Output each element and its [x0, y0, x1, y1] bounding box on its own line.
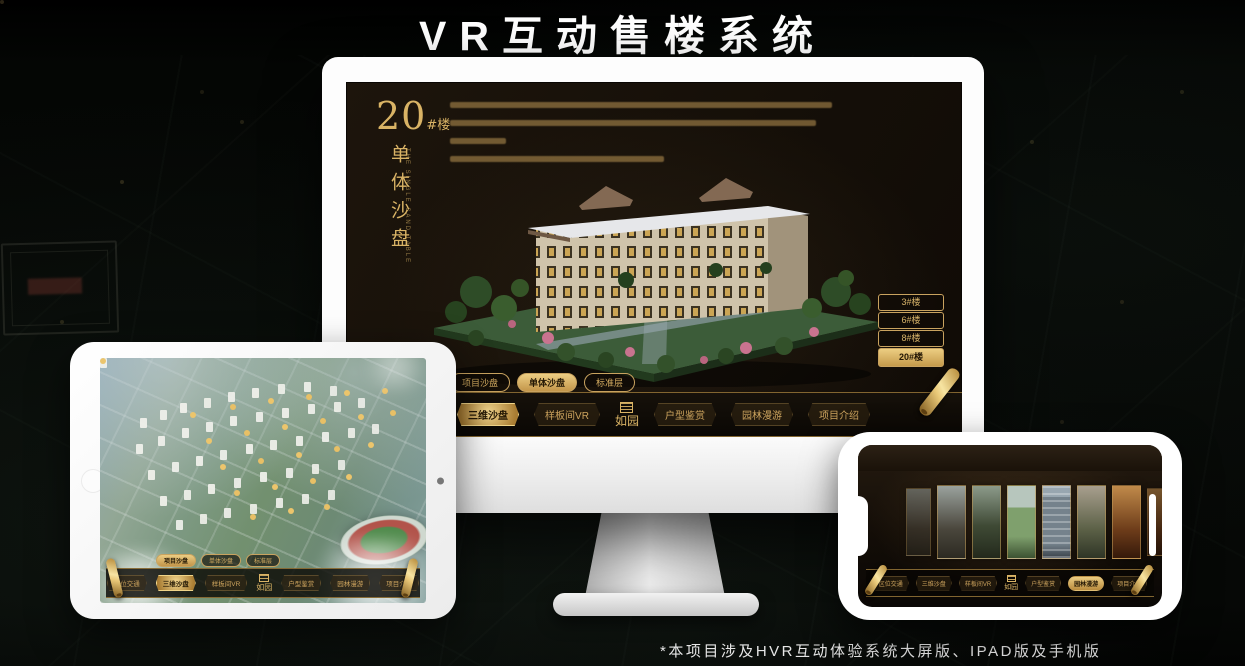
subtab-standard-floor[interactable]: 标准层	[584, 373, 635, 392]
scene-panels	[906, 485, 1162, 559]
floor-button-6[interactable]: 6#楼	[878, 312, 944, 329]
subtab-project-sandtable[interactable]: 项目沙盘	[156, 554, 196, 567]
tablet-home-button[interactable]	[437, 477, 444, 484]
nav-showroom-vr[interactable]: 样板间VR	[205, 575, 248, 591]
building-number: 20	[376, 94, 426, 138]
subtab-project-sandtable[interactable]: 项目沙盘	[450, 373, 510, 392]
phone-screen: 区位交通 三维沙盘 样板间VR 如园 户型鉴赏 园林漫游 项目介绍	[858, 445, 1162, 607]
scene-panel[interactable]	[1112, 485, 1141, 559]
scene-panel[interactable]	[1042, 485, 1071, 559]
brand-logo-text: 如园	[256, 583, 272, 592]
subtab-single-sandtable[interactable]: 单体沙盘	[201, 554, 241, 567]
nav-project-intro[interactable]: 项目介绍	[808, 403, 870, 426]
subtab-single-sandtable[interactable]: 单体沙盘	[517, 373, 577, 392]
nav-showroom-vr[interactable]: 样板间VR	[534, 403, 600, 426]
description-text-line	[450, 120, 816, 126]
nav-3d-sandtable[interactable]: 三维沙盘	[916, 576, 952, 591]
footnote: *本项目涉及HVR互动体验系统大屏版、IPAD版及手机版	[660, 640, 1101, 661]
phone-home-indicator	[1149, 494, 1156, 556]
building-markers	[100, 358, 106, 364]
page-title: VR互动售楼系统	[0, 2, 1245, 62]
monitor-stand-base	[553, 593, 759, 616]
nav-garden-roam[interactable]: 园林漫游	[330, 575, 370, 591]
background-plaque	[1, 240, 119, 335]
nav-floorplan[interactable]: 户型鉴赏	[654, 403, 716, 426]
nav-garden-roam[interactable]: 园林漫游	[731, 403, 793, 426]
brand-logo: 如园	[256, 574, 272, 592]
nav-3d-sandtable[interactable]: 三维沙盘	[156, 575, 196, 591]
brand-logo: 如园	[615, 402, 639, 427]
description-text-line	[450, 102, 832, 108]
floor-button-3[interactable]: 3#楼	[878, 294, 944, 311]
nav-showroom-vr[interactable]: 样板间VR	[959, 576, 997, 591]
tablet-screen: 项目沙盘 单体沙盘 标准层 区位交通 三维沙盘 样板间VR 如园 户型鉴赏 园林…	[100, 358, 426, 603]
subtab-standard-floor[interactable]: 标准层	[246, 554, 280, 567]
monitor-subtabs: 项目沙盘 单体沙盘 标准层	[450, 373, 635, 392]
nav-floorplan[interactable]: 户型鉴赏	[281, 575, 321, 591]
brand-logo-text: 如园	[1004, 583, 1018, 591]
scene-panel[interactable]	[937, 485, 966, 559]
floor-button-20[interactable]: 20#楼	[878, 348, 944, 367]
tablet-subtabs: 项目沙盘 单体沙盘 标准层	[156, 554, 280, 567]
scene-panel[interactable]	[906, 488, 931, 556]
phone-device: 区位交通 三维沙盘 样板间VR 如园 户型鉴赏 园林漫游 项目介绍	[838, 432, 1182, 620]
tablet-device: 项目沙盘 单体沙盘 标准层 区位交通 三维沙盘 样板间VR 如园 户型鉴赏 园林…	[70, 342, 456, 619]
brand-logo-text: 如园	[615, 414, 639, 428]
scene-panel[interactable]	[1007, 485, 1036, 559]
interior-ceiling	[858, 445, 1162, 471]
scene-panel[interactable]	[972, 485, 1001, 559]
nav-garden-roam[interactable]: 园林漫游	[1068, 576, 1104, 591]
floor-button-8[interactable]: 8#楼	[878, 330, 944, 347]
seal-icon	[1007, 575, 1016, 582]
nav-floorplan[interactable]: 户型鉴赏	[1025, 576, 1061, 591]
nav-3d-sandtable[interactable]: 三维沙盘	[457, 403, 519, 426]
phone-notch	[856, 496, 868, 556]
page: VR互动售楼系统 20#楼 单体沙盘 THE SINGLE SAND TABLE	[0, 0, 1245, 666]
tablet-navbar: 区位交通 三维沙盘 样板间VR 如园 户型鉴赏 园林漫游 项目介绍	[106, 568, 420, 598]
seal-icon	[620, 402, 633, 413]
heading-caption-en: THE SINGLE SAND TABLE	[404, 148, 410, 268]
building-3d-render	[416, 142, 896, 387]
cloud-overlay	[356, 358, 426, 390]
phone-navbar: 区位交通 三维沙盘 样板间VR 如园 户型鉴赏 园林漫游 项目介绍	[866, 569, 1154, 597]
scene-panel[interactable]	[1077, 485, 1106, 559]
building-number-suffix: #楼	[426, 118, 450, 133]
seal-icon	[259, 574, 269, 582]
monitor-stand-neck	[585, 511, 725, 597]
brand-logo: 如园	[1004, 575, 1018, 591]
